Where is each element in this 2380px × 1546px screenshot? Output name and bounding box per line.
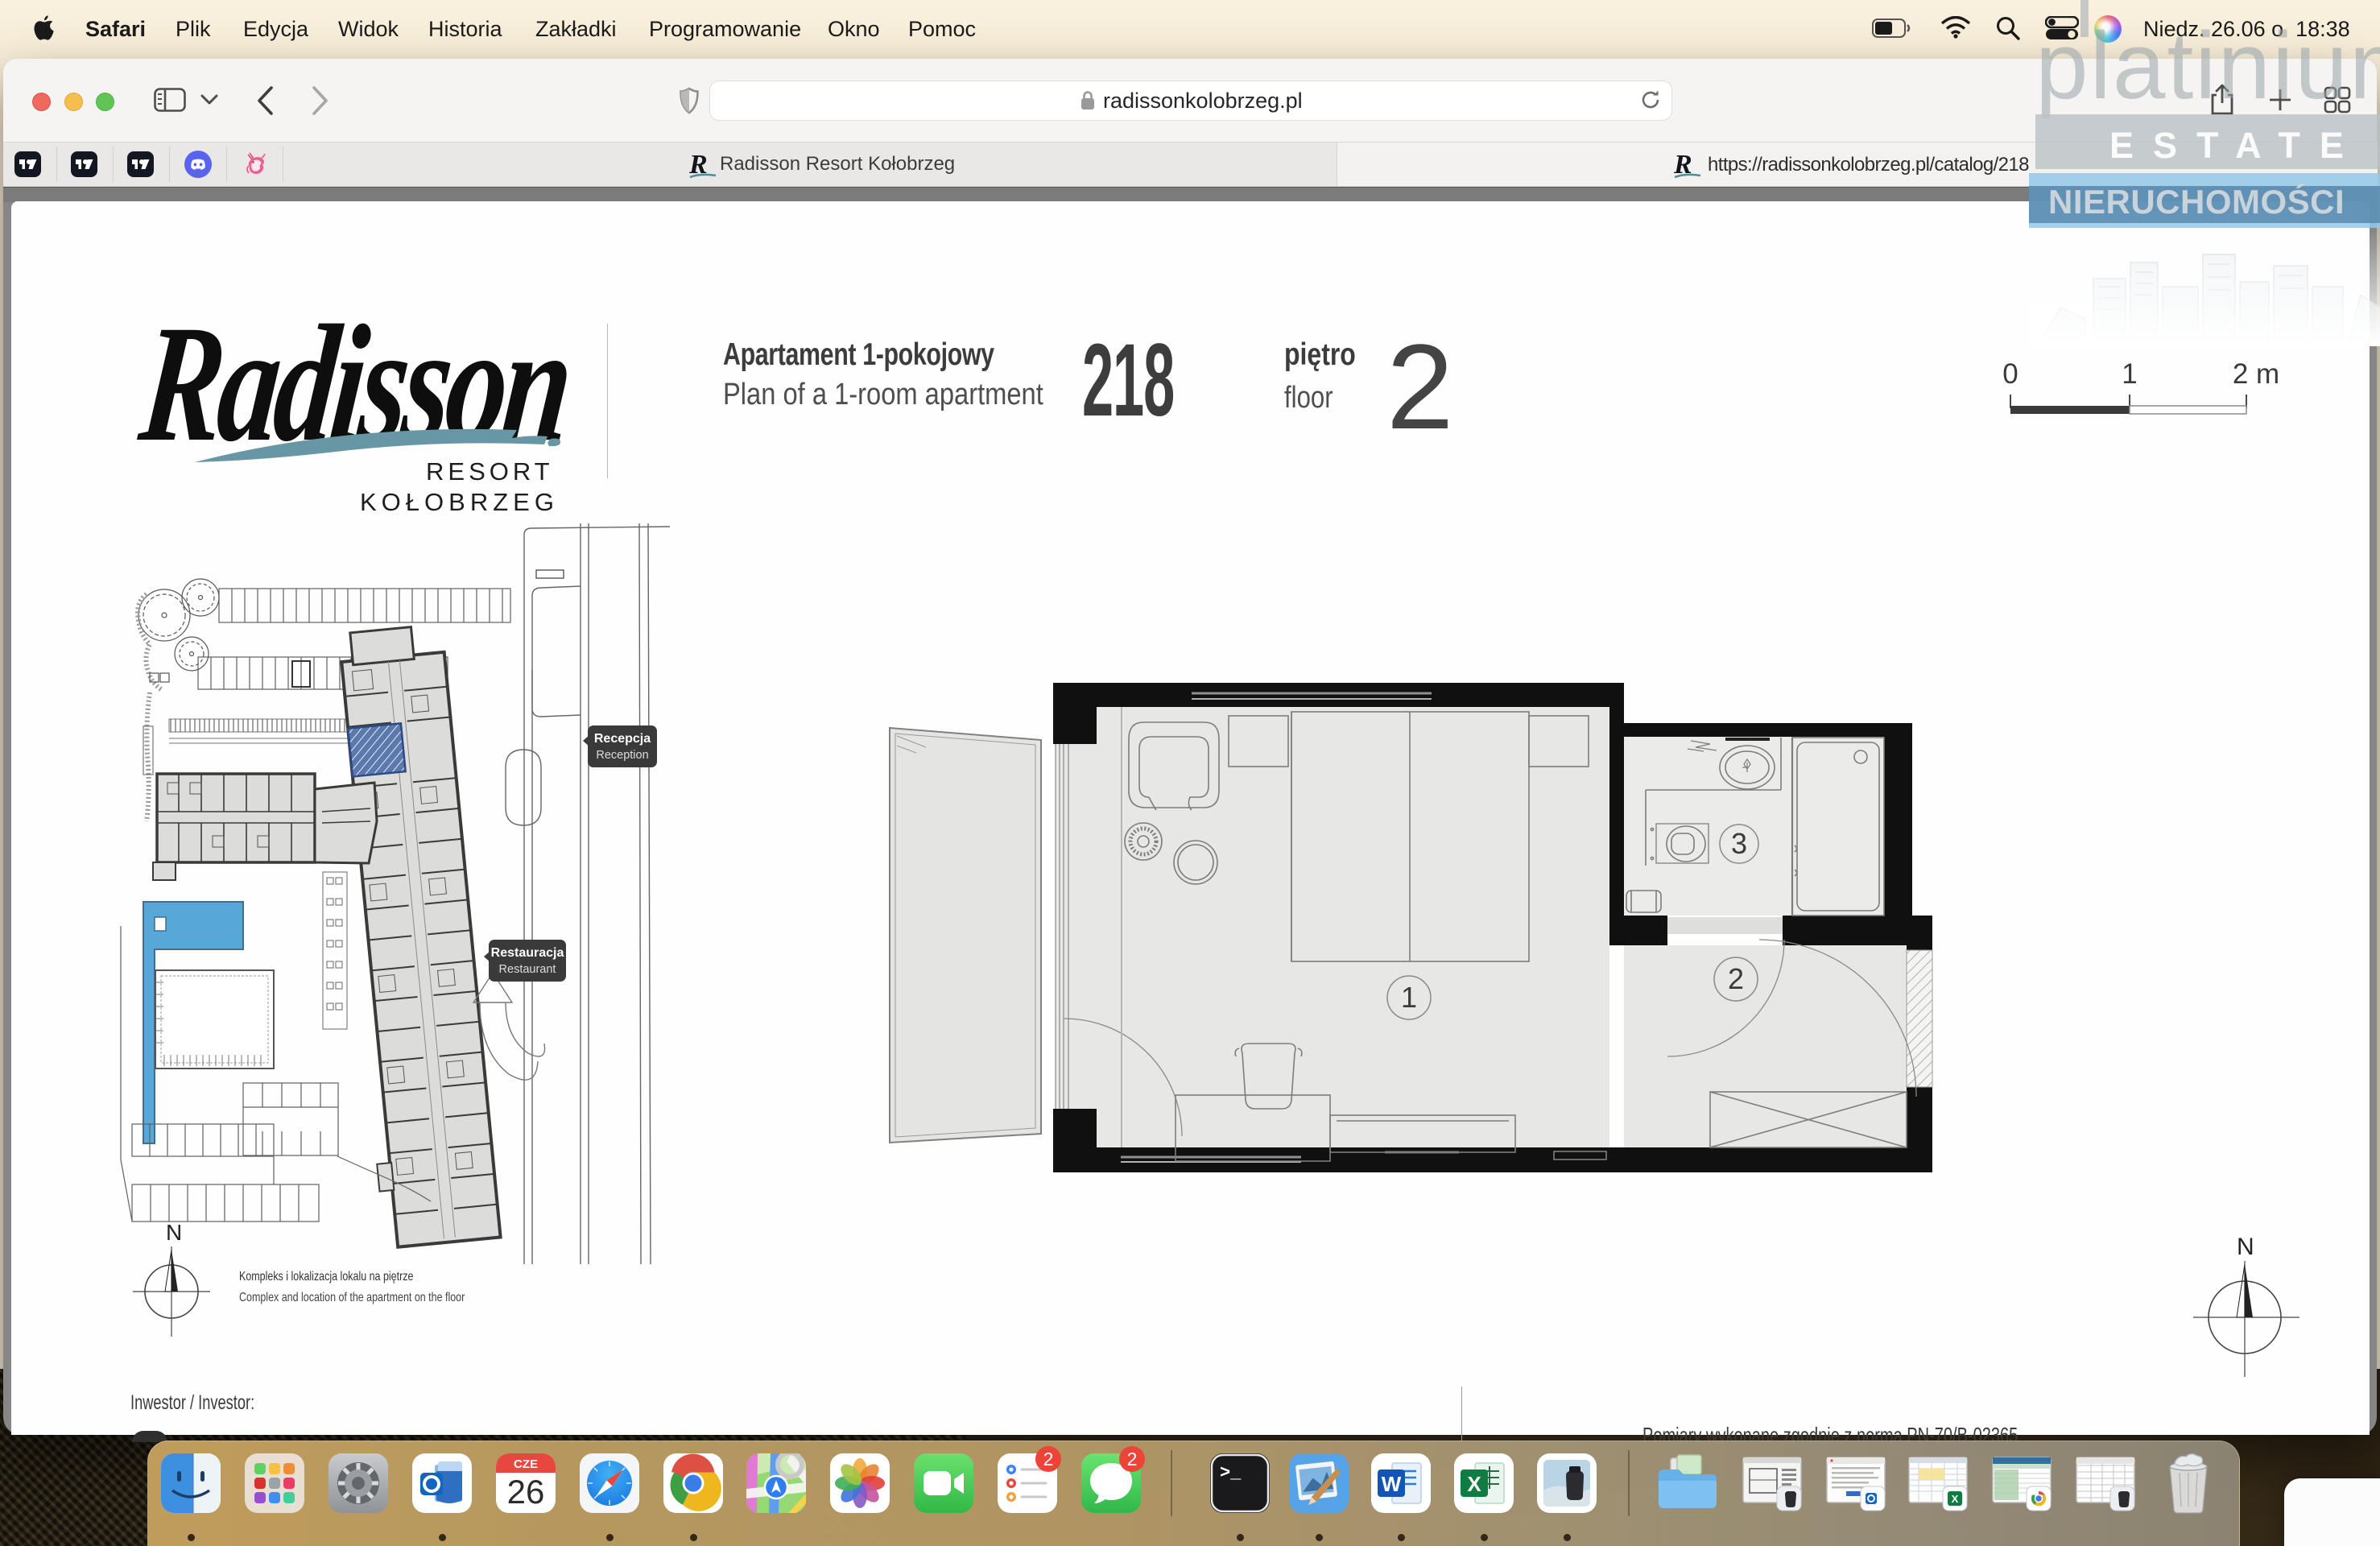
svg-text:Restauracja: Restauracja (491, 946, 564, 960)
svg-text:26: 26 (507, 1473, 545, 1511)
svg-text:Reception: Reception (596, 749, 648, 762)
svg-text:X: X (1952, 1493, 1959, 1505)
svg-text:1: 1 (1401, 981, 1417, 1014)
svg-text:3: 3 (1731, 827, 1747, 860)
svg-text:2: 2 (1728, 962, 1744, 995)
svg-text:1: 1 (2122, 358, 2137, 390)
svg-text:N: N (2237, 1234, 2254, 1260)
svg-text:0: 0 (2002, 358, 2018, 390)
svg-text:X: X (1467, 1472, 1481, 1496)
svg-text:CZE: CZE (514, 1457, 538, 1471)
svg-text:Recepcja: Recepcja (594, 732, 651, 746)
svg-text:Restaurant: Restaurant (499, 963, 556, 976)
svg-text:2 m: 2 m (2233, 358, 2279, 390)
svg-text:>_: >_ (1220, 1463, 1242, 1483)
svg-text:W: W (1382, 1472, 1402, 1496)
